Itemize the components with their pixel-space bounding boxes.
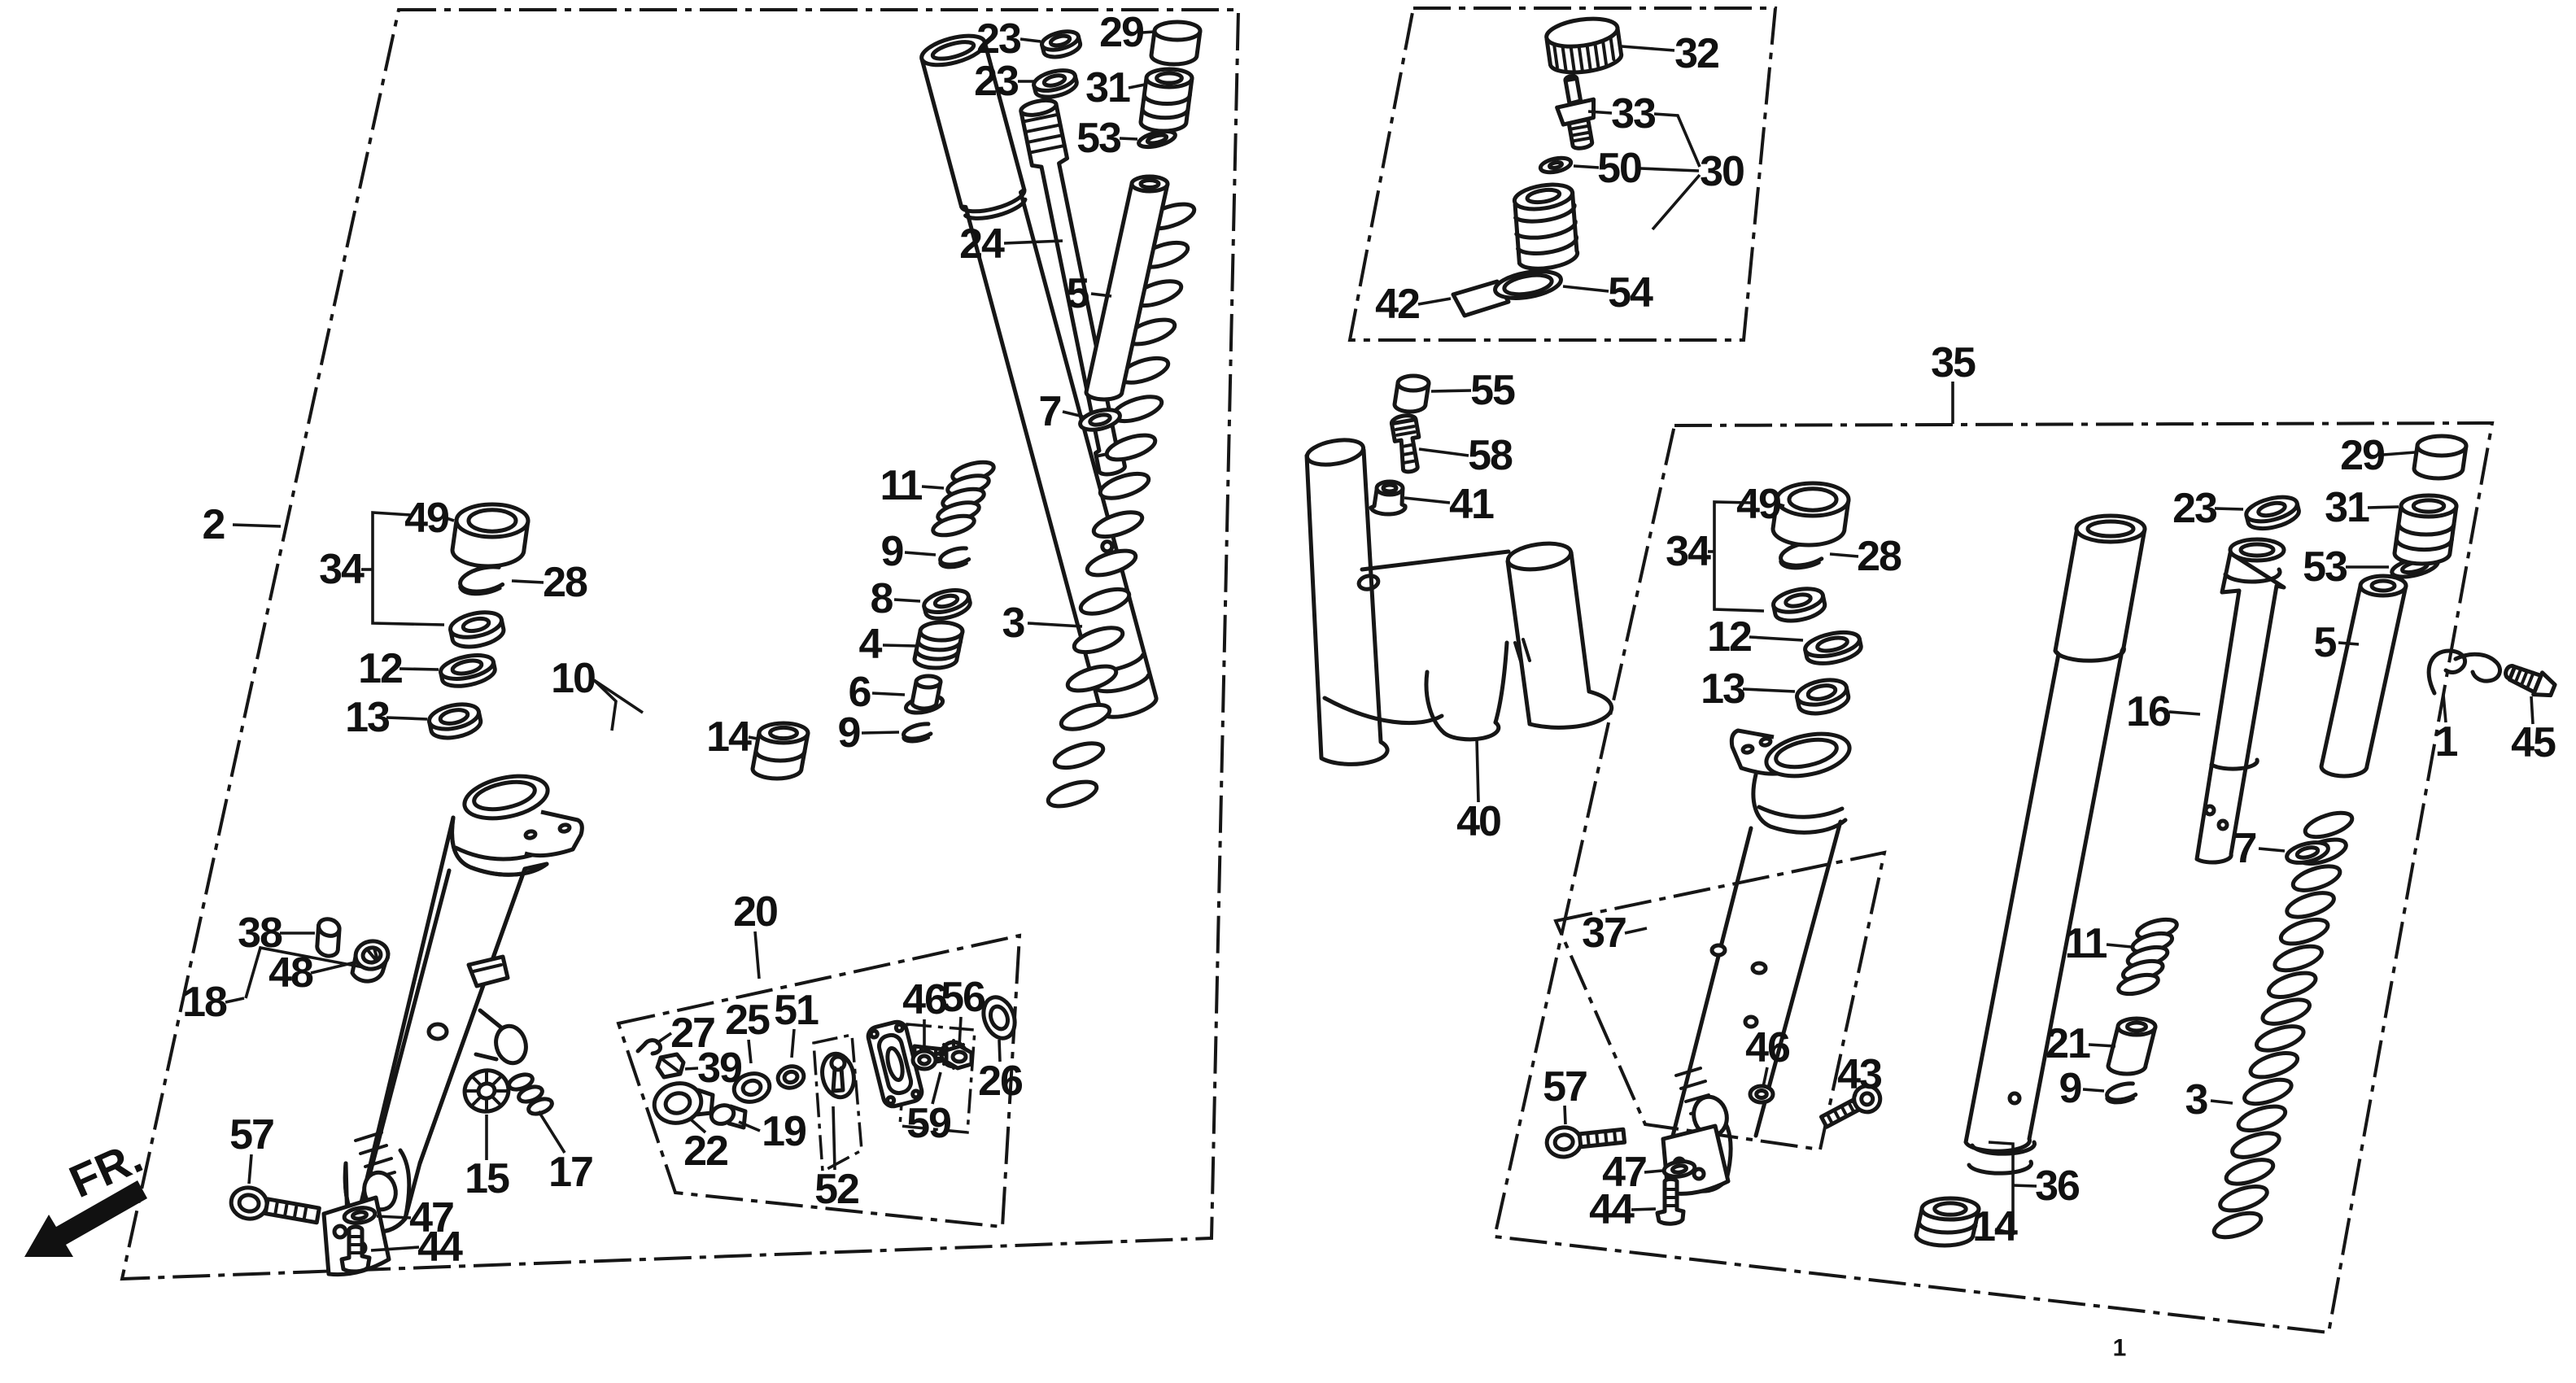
part-label-16: 16 — [2126, 688, 2171, 735]
part-label-5: 5 — [2314, 619, 2337, 666]
ring-51 — [775, 1064, 806, 1091]
leader-52 — [833, 1106, 835, 1170]
leader-16 — [2169, 712, 2200, 714]
leader-9 — [2083, 1089, 2104, 1091]
part-label-9: 9 — [2059, 1065, 2081, 1112]
part-label-11: 11 — [880, 462, 923, 509]
bushing-14-left — [753, 723, 808, 779]
part-label-33: 33 — [1611, 90, 1656, 137]
part-label-57: 57 — [1543, 1063, 1587, 1110]
left-bushing-48 — [352, 939, 391, 981]
part-label-34: 34 — [319, 546, 365, 593]
bolt-58 — [1391, 414, 1425, 473]
leader-4 — [883, 645, 916, 646]
leader-56 — [959, 1017, 961, 1046]
leader-2 — [233, 525, 281, 526]
spring-coil — [2284, 888, 2336, 922]
bushing-14-right — [1916, 1198, 1979, 1246]
part-label-49: 49 — [404, 495, 448, 542]
leader-47 — [1644, 1171, 1662, 1172]
piston-6-left — [912, 676, 941, 709]
ring-12-left — [439, 651, 497, 690]
part-label-29: 29 — [1099, 9, 1143, 56]
leader-50 — [1574, 166, 1599, 168]
spring-coil — [2259, 995, 2312, 1028]
leader-48 — [311, 962, 355, 973]
clip-28-left — [457, 565, 504, 598]
leader-3 — [2211, 1101, 2233, 1103]
leader-11 — [2107, 945, 2132, 947]
wire-clamp-1 — [2429, 651, 2500, 693]
leader-7 — [2259, 849, 2285, 851]
exploded-fork-diagram: FR. 223232931532457119846931014493428121… — [0, 0, 2576, 1383]
ring-34-right — [1771, 585, 1827, 625]
part-label-13: 13 — [345, 694, 390, 741]
clip-9b-left — [902, 722, 932, 744]
spring-coil — [2248, 1049, 2300, 1082]
part-label-58: 58 — [1468, 432, 1513, 479]
part-label-23: 23 — [974, 58, 1019, 105]
ring-34-left — [448, 609, 506, 651]
part-label-43: 43 — [1837, 1051, 1882, 1098]
part-label-31: 31 — [2325, 484, 2369, 531]
part-label-49: 49 — [1736, 481, 1780, 528]
leader-8 — [894, 600, 920, 601]
cap-29-left — [1151, 22, 1200, 64]
spring-coil — [1059, 700, 1112, 734]
leader-9 — [905, 552, 936, 555]
spring-coil — [2242, 1075, 2294, 1108]
cap-55 — [1395, 376, 1429, 412]
leader-53 — [1120, 138, 1137, 139]
leader-31 — [2368, 507, 2399, 508]
leader-5 — [2338, 643, 2359, 644]
leader-42 — [1418, 299, 1451, 304]
leader-9 — [862, 732, 899, 733]
leader-58 — [1419, 449, 1469, 456]
washer-46-right — [1750, 1086, 1773, 1102]
cap-29-right — [2414, 436, 2466, 478]
part-label-1: 1 — [2435, 718, 2458, 766]
part-label-39: 39 — [697, 1045, 741, 1092]
fork-cap-32 — [1545, 15, 1623, 76]
part-label-59: 59 — [906, 1100, 950, 1147]
part-label-28: 28 — [1857, 533, 1901, 580]
part-label-50: 50 — [1597, 145, 1641, 192]
part-label-44: 44 — [417, 1224, 463, 1271]
part-label-57: 57 — [229, 1111, 273, 1158]
part-label-4: 4 — [859, 621, 883, 668]
part-label-2: 2 — [203, 501, 225, 548]
leader-54 — [1563, 286, 1609, 291]
nut-46-left — [913, 1051, 936, 1069]
leader-33 — [1588, 111, 1612, 113]
seal-49-left — [452, 504, 528, 566]
left-cap-38 — [310, 917, 346, 959]
part-label-40: 40 — [1456, 798, 1500, 845]
spring-coil — [2272, 941, 2324, 975]
leader-3 — [1028, 623, 1082, 626]
part-label-9: 9 — [838, 709, 860, 757]
washer-8-left — [922, 587, 972, 623]
part-label-20: 20 — [733, 888, 777, 936]
part-label-56: 56 — [941, 974, 985, 1021]
part-label-10: 10 — [551, 655, 595, 702]
part-label-23: 23 — [2172, 485, 2217, 532]
leader-12 — [1749, 637, 1803, 640]
leader-13 — [386, 718, 427, 719]
part-label-35: 35 — [1931, 339, 1976, 386]
spring-coil — [2303, 808, 2355, 841]
leader-6 — [872, 693, 905, 695]
ring-13-right — [1795, 676, 1851, 718]
right-rebound-spring — [2116, 916, 2178, 997]
leader-40 — [1477, 739, 1478, 802]
screw-45 — [2502, 660, 2557, 700]
plug-39 — [657, 1054, 683, 1077]
spring-coil — [2254, 1022, 2306, 1055]
part-label-29: 29 — [2340, 432, 2384, 479]
leader-11 — [922, 486, 944, 488]
part-label-53: 53 — [2303, 543, 2347, 591]
part-label-23: 23 — [976, 15, 1021, 63]
part-label-44: 44 — [1589, 1186, 1635, 1233]
leader-10 — [594, 680, 643, 713]
tube-5-right — [2321, 576, 2406, 776]
leader-23 — [1020, 39, 1041, 41]
part-label-45: 45 — [2511, 719, 2556, 766]
part-label-3: 3 — [1002, 600, 1025, 647]
leader-31 — [1129, 85, 1145, 88]
part-label-25: 25 — [725, 997, 770, 1044]
part-callouts: 2232329315324571198469310144934281213183… — [182, 9, 2556, 1362]
leader-44 — [1631, 1209, 1656, 1210]
part-label-12: 12 — [358, 645, 402, 692]
stack-31-left — [1141, 69, 1192, 131]
part-label-24: 24 — [959, 220, 1005, 268]
spring-coil — [2266, 968, 2318, 1001]
leader-37 — [1625, 928, 1647, 933]
part-label-30: 30 — [1700, 148, 1744, 195]
clip-9a-left — [937, 547, 969, 570]
part-label-48: 48 — [269, 949, 313, 997]
part-label-26: 26 — [978, 1058, 1023, 1105]
part-label-51: 51 — [774, 987, 819, 1034]
right-main-spring — [2211, 808, 2355, 1241]
part-label-36: 36 — [2035, 1163, 2080, 1210]
spring-coil — [1046, 777, 1099, 811]
leader-28 — [1830, 554, 1858, 556]
leader-39 — [685, 1068, 698, 1069]
part-label-28: 28 — [543, 559, 587, 606]
left-rebound-spring — [931, 459, 995, 539]
leader-27 — [656, 1033, 671, 1044]
left-lock-nut-15 — [460, 1066, 513, 1116]
leader-28 — [512, 581, 544, 582]
stack-31-right — [2395, 495, 2456, 564]
part-label-55: 55 — [1470, 367, 1515, 414]
washer-7-left — [1078, 406, 1122, 433]
part-label-1: 1 — [2113, 1335, 2126, 1362]
part-label-3: 3 — [2185, 1076, 2208, 1123]
part-label-17: 17 — [548, 1149, 592, 1196]
part-label-9: 9 — [881, 528, 903, 575]
cap-body-30 — [1508, 181, 1583, 273]
spring-coil — [2211, 1208, 2264, 1241]
leader-47 — [377, 1216, 411, 1218]
part-label-8: 8 — [871, 575, 893, 622]
left-spring-washers-17 — [507, 1071, 554, 1116]
part-label-12: 12 — [1707, 613, 1751, 661]
leader-12 — [399, 669, 439, 670]
ring-23a-left — [1040, 28, 1082, 60]
part-label-11: 11 — [2065, 920, 2107, 967]
nut-41 — [1371, 482, 1405, 514]
part-label-14: 14 — [706, 713, 752, 761]
part-label-41: 41 — [1449, 481, 1494, 528]
part-label-5: 5 — [1067, 270, 1089, 317]
part-label-31: 31 — [1085, 64, 1130, 111]
ring-12-right — [1803, 628, 1863, 667]
spring-coil — [2224, 1155, 2276, 1189]
part-label-34: 34 — [1666, 528, 1711, 575]
spring-coil — [2278, 915, 2330, 949]
part-label-7: 7 — [1039, 388, 1061, 435]
ring-23-right — [2244, 493, 2302, 533]
leader-41 — [1404, 498, 1450, 503]
part-label-53: 53 — [1076, 115, 1121, 162]
part-label-21: 21 — [2046, 1020, 2090, 1067]
parts-diagram-page: { "fr_label": "FR.", "parts": [ {"label"… — [0, 0, 2576, 1383]
leader-57 — [249, 1154, 251, 1184]
oring-54 — [1493, 267, 1563, 303]
clip-9-right — [2104, 1082, 2136, 1106]
ring-23b-left — [1032, 67, 1079, 101]
leader-21 — [2089, 1045, 2115, 1046]
part-label-15: 15 — [465, 1155, 509, 1202]
part-label-46: 46 — [1745, 1024, 1790, 1071]
part-label-14: 14 — [1972, 1203, 2018, 1250]
spring-coil — [2236, 1102, 2288, 1135]
part-label-22: 22 — [683, 1128, 727, 1175]
leader-13 — [1743, 689, 1795, 691]
part-label-7: 7 — [2234, 825, 2256, 872]
leader-32 — [1622, 46, 1674, 50]
spring-coil — [2229, 1128, 2281, 1162]
leader-36 — [2013, 1185, 2037, 1186]
part-label-37: 37 — [1582, 910, 1626, 957]
part-label-54: 54 — [1608, 269, 1653, 316]
part-label-19: 19 — [762, 1108, 806, 1155]
seal-49-right — [1773, 483, 1849, 545]
leader-18 — [225, 998, 244, 1002]
leader-29 — [2383, 452, 2415, 455]
right-damper-tube-16 — [2197, 539, 2284, 862]
leader-23 — [2215, 508, 2243, 509]
leader-29 — [1142, 32, 1155, 33]
part-label-18: 18 — [182, 979, 227, 1026]
washer-50 — [1539, 155, 1572, 175]
spring-coil — [1052, 739, 1106, 773]
left-axle-bolt-57 — [229, 1184, 321, 1230]
leader-55 — [1431, 390, 1471, 391]
washer-4-left — [915, 622, 963, 668]
spring-coil — [2217, 1182, 2269, 1215]
part-label-32: 32 — [1674, 30, 1718, 77]
part-label-13: 13 — [1701, 665, 1745, 713]
part-label-42: 42 — [1375, 281, 1419, 328]
ring-13-left — [427, 700, 483, 742]
spring-coil — [2290, 862, 2342, 895]
part-label-52: 52 — [814, 1166, 858, 1213]
leader-17 — [539, 1111, 565, 1153]
valve-52 — [819, 1051, 858, 1101]
leader-20 — [755, 931, 759, 979]
